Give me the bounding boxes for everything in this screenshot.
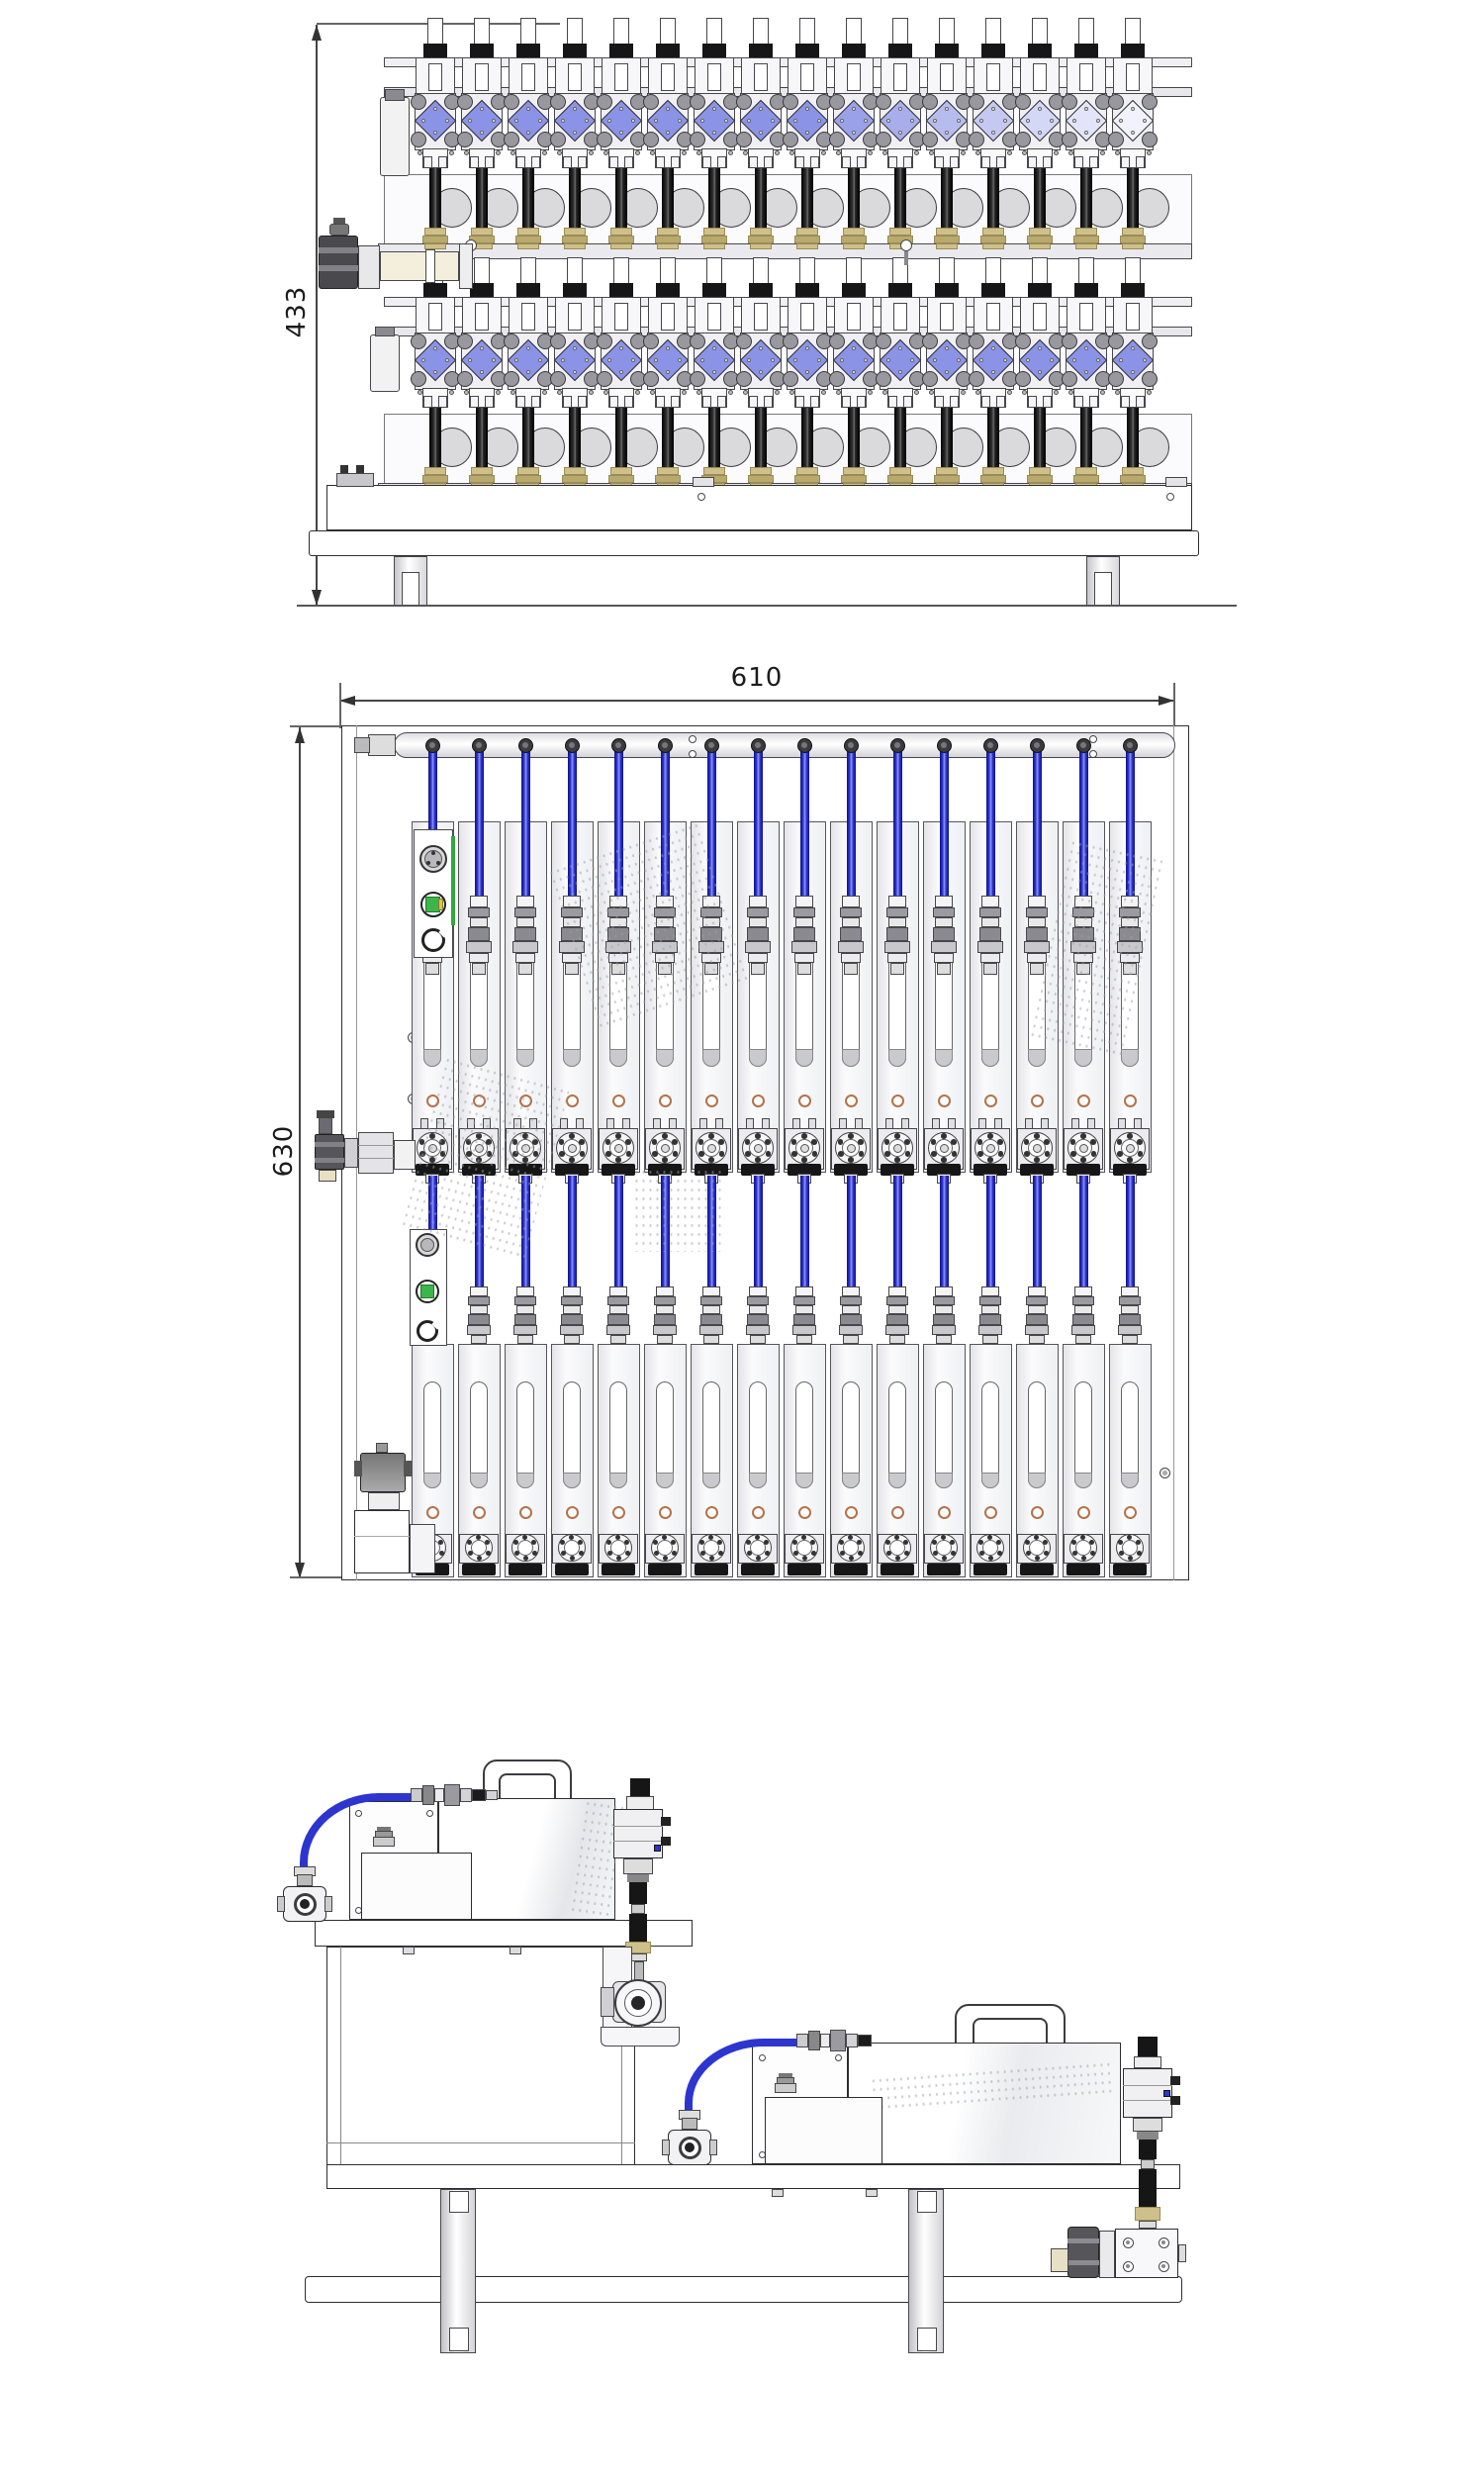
fitting-hex — [623, 1858, 653, 1874]
leg-notch — [449, 2328, 469, 2351]
shelf-nub — [866, 2189, 878, 2197]
body-line — [1123, 2100, 1172, 2101]
base-rail — [305, 2276, 1182, 2303]
hose-connector — [460, 1788, 472, 1802]
hose-connector — [422, 1785, 434, 1805]
dimension-plan-height-label: 630 — [271, 1121, 297, 1181]
valve-lug — [709, 2140, 717, 2155]
fluid-tube — [300, 1793, 417, 1876]
valve-lug — [325, 1896, 332, 1912]
valve-collar — [1134, 2056, 1161, 2068]
block-port — [1178, 2244, 1186, 2262]
hose-connector — [820, 2034, 830, 2047]
mounting-shelf — [326, 2164, 1180, 2189]
clamp-flange — [1099, 2231, 1115, 2278]
valve-cap — [1138, 2037, 1158, 2058]
hose-black — [1139, 2169, 1157, 2207]
pipe-clamp — [1067, 2227, 1099, 2278]
hose-connector — [830, 2030, 846, 2051]
cart-frame-inner — [340, 1947, 341, 2166]
fitting-hex — [1133, 2118, 1162, 2132]
shelf-nub — [510, 1947, 521, 1954]
hose-connector — [796, 2034, 808, 2047]
valve-collar — [626, 1796, 654, 1810]
valve-bracket-foot — [601, 2027, 680, 2046]
cart-frame-inner — [326, 2142, 635, 2143]
valve-lug — [277, 1896, 285, 1912]
body-line — [613, 1841, 663, 1842]
leg-notch — [449, 2191, 469, 2213]
fitting-ring — [1137, 2132, 1159, 2140]
fitting-ring — [627, 1874, 649, 1882]
hose-connector — [486, 1790, 498, 1800]
dimension-overall-height-label: 433 — [284, 282, 310, 341]
hose-black — [629, 1882, 647, 1904]
fitting-ring — [1141, 2159, 1155, 2169]
leg-notch — [917, 2191, 937, 2213]
hose-black — [629, 1914, 647, 1942]
port-dot-blue — [1163, 2090, 1170, 2097]
clamp-tip — [1051, 2248, 1068, 2272]
ball-valve-port — [631, 1996, 645, 2010]
box-screw — [835, 2054, 842, 2061]
technical-drawing-canvas: 433 610 630 — [0, 0, 1484, 2474]
hose-black — [1139, 2140, 1157, 2159]
hose-connector — [411, 1788, 422, 1802]
leg-notch — [917, 2328, 937, 2351]
hose-connector — [808, 2031, 820, 2050]
side-view-drawing — [0, 0, 1484, 2474]
ball-valve-port — [300, 1899, 310, 1909]
hose-connector — [434, 1788, 444, 1802]
shelf-nub — [772, 2189, 784, 2197]
valve-hex-left — [601, 1987, 614, 2017]
hose-connector — [444, 1784, 460, 1806]
fitting-ring — [631, 1904, 645, 1914]
cart-frame — [326, 1947, 635, 2166]
port-nub — [1170, 2096, 1180, 2105]
clamp-band — [1067, 2260, 1099, 2265]
fluid-tube — [685, 2039, 801, 2118]
port-nub — [661, 1837, 671, 1846]
port-nub — [661, 1817, 671, 1826]
valve-cap — [630, 1778, 650, 1798]
hose-connector — [472, 1789, 486, 1801]
body-line — [613, 1826, 663, 1827]
fitting-stack — [682, 2118, 697, 2130]
hose-connector — [858, 2035, 872, 2046]
valve-lug — [662, 2140, 670, 2155]
compression-fitting — [1135, 2207, 1160, 2221]
port-dot-blue — [654, 1845, 661, 1852]
box-screw — [426, 1810, 433, 1817]
fitting-ring — [1139, 2221, 1157, 2229]
clamp-band — [1067, 2238, 1099, 2243]
ball-valve-port — [685, 2142, 695, 2152]
fitting-stack — [297, 1874, 313, 1886]
body-line — [1123, 2085, 1172, 2086]
hose-connector — [846, 2034, 858, 2047]
port-nub — [1170, 2076, 1180, 2085]
dimension-width-label: 610 — [717, 665, 796, 691]
shelf-nub — [403, 1947, 415, 1954]
